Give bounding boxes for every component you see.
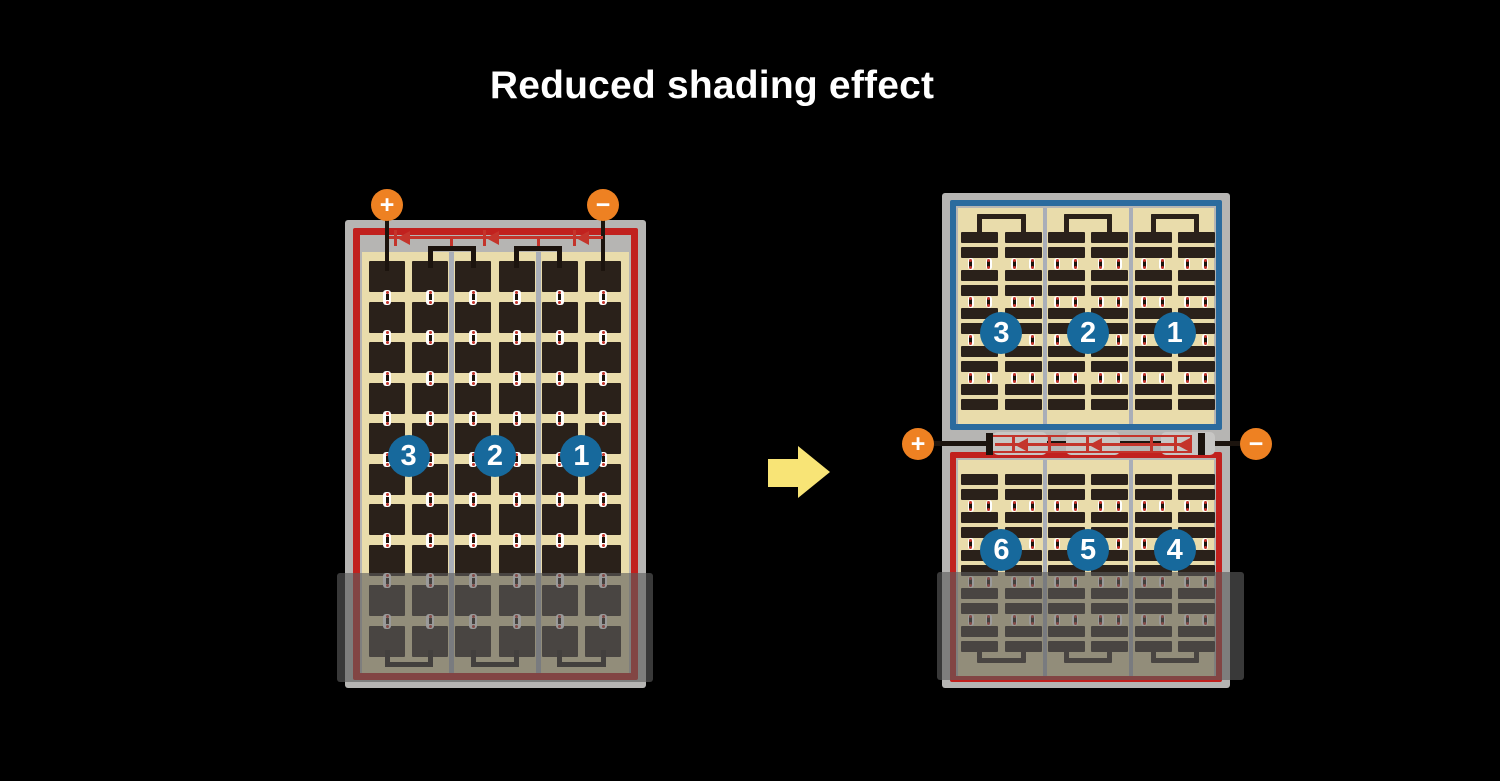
terminal-negative: −	[587, 189, 619, 221]
string-badge: 2	[474, 435, 516, 477]
shading-overlay	[937, 572, 1244, 680]
diagram-title: Reduced shading effect	[462, 64, 962, 108]
arrow-head	[798, 446, 830, 498]
string-bridge-top	[514, 246, 562, 251]
positive-lead-wire	[385, 218, 389, 271]
terminal-negative: −	[1240, 428, 1272, 460]
bypass-diode-icon	[486, 231, 499, 245]
half-cut-split-module: 321654+−	[900, 188, 1280, 688]
string-bridge-top	[514, 246, 519, 268]
diagram-canvas: Reduced shading effect 321+− 321654+−	[0, 0, 1500, 781]
string-bridge-top	[428, 246, 476, 251]
conventional-module: 321+−	[345, 188, 646, 688]
bypass-diode-icon	[576, 231, 589, 245]
diode-bus-tick	[1048, 437, 1051, 452]
string-bridge-top	[471, 246, 476, 268]
string-badge: 3	[388, 435, 430, 477]
string-bridge-top	[557, 246, 562, 268]
string-badge: 5	[1067, 529, 1109, 571]
diode-bus-tick	[1150, 437, 1153, 452]
negative-lead-wire	[601, 218, 605, 271]
wire-cap	[1198, 433, 1205, 455]
wire-cap	[986, 433, 993, 455]
arrow-shaft	[768, 459, 798, 487]
bypass-diode-icon	[1177, 438, 1190, 452]
shading-overlay	[337, 573, 653, 682]
string-badge: 4	[1154, 529, 1196, 571]
string-badge: 2	[1067, 312, 1109, 354]
terminal-positive: +	[902, 428, 934, 460]
string-bridge-top	[428, 246, 433, 268]
bypass-diode-icon	[1015, 438, 1028, 452]
string-badge: 1	[1154, 312, 1196, 354]
bypass-diode-icon	[397, 231, 410, 245]
bypass-diode-icon	[1089, 438, 1102, 452]
terminal-positive: +	[371, 189, 403, 221]
